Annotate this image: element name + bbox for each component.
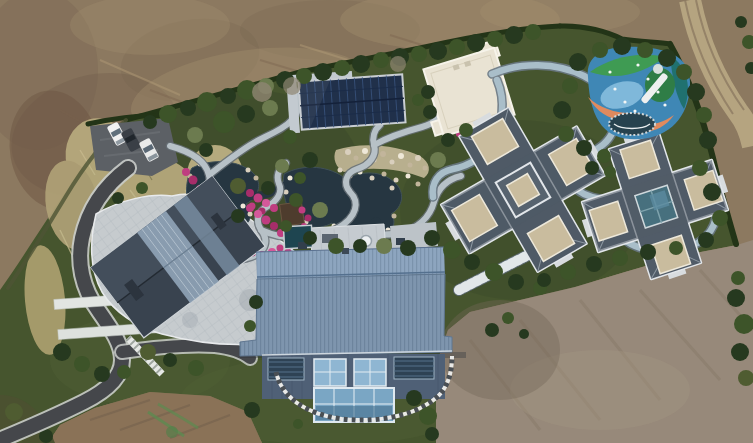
blue-roof-building (240, 238, 466, 422)
window-glass-2 (354, 359, 386, 386)
louver-window-right (394, 357, 434, 379)
aerial-photo (0, 0, 753, 443)
climber-dome (653, 64, 663, 74)
aerial-photo-stage (0, 0, 753, 443)
trampoline (609, 113, 655, 135)
roof-main-slope (240, 274, 452, 356)
window-glass-1 (314, 359, 346, 386)
louver-window-left (268, 358, 304, 380)
